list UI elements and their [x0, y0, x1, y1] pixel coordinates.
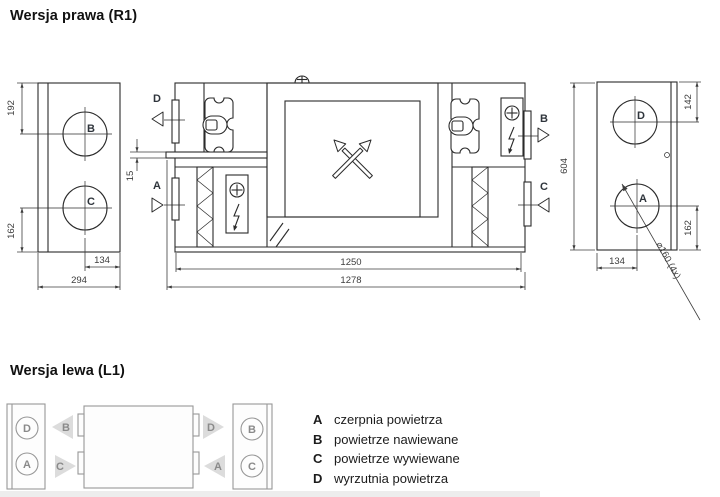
left-view-body [38, 83, 120, 252]
l1-unit [78, 406, 199, 488]
legend: A czerpnia powietrza B powietrze nawiewa… [313, 412, 460, 486]
legend-item: C powietrze wywiewane [313, 451, 460, 466]
legend-label: wyrzutnia powietrza [334, 471, 448, 486]
port-d-label: D [207, 422, 215, 434]
left-side-view: B C [20, 83, 120, 252]
legend-item: B powietrze nawiewane [313, 432, 460, 447]
port-a-label: A [23, 459, 31, 471]
port-d-label: D [153, 93, 161, 105]
dim-1278-label: 1278 [340, 275, 361, 286]
shelf-plate [166, 152, 267, 158]
port-c-label: C [540, 181, 548, 193]
heater-icon [226, 175, 248, 233]
legend-key: D [313, 471, 334, 486]
port-d-label: D [637, 110, 645, 122]
legend-item: D wyrzutnia powietrza [313, 471, 460, 486]
port-d-arrow [152, 112, 163, 126]
dim-1250-label: 1250 [340, 257, 361, 268]
port-c-arrow [538, 198, 549, 212]
dim-604-label: 604 [559, 158, 570, 174]
dim-294-label: 294 [71, 275, 87, 286]
dim-134-left-label: 134 [94, 255, 110, 266]
port-d-label: D [23, 423, 31, 435]
legend-key: A [313, 412, 334, 427]
lifting-eye-icon [295, 76, 309, 83]
port-a-stub [172, 178, 179, 220]
port-a-label: A [153, 180, 161, 192]
legend-key: C [313, 451, 334, 466]
port-c-label: C [56, 461, 64, 473]
port-c-stub [524, 182, 531, 226]
port-c-label: C [248, 461, 256, 473]
scan-shadow [0, 491, 540, 497]
legend-label: czerpnia powietrza [334, 412, 442, 427]
legend-key: B [313, 432, 334, 447]
legend-item: A czerpnia powietrza [313, 412, 460, 427]
port-a-arrow [152, 198, 163, 212]
front-view [164, 76, 541, 252]
dim-162-left-label: 162 [6, 223, 17, 239]
port-b-label: B [540, 113, 548, 125]
technical-drawing-page: Wersja prawa (R1) Wersja lewa (L1) [0, 0, 720, 497]
port-d-stub [172, 100, 179, 143]
port-a-label: A [639, 193, 647, 205]
l1-right-panel: B C [233, 404, 272, 489]
legend-label: powietrze nawiewane [334, 432, 458, 447]
dim-15-label: 15 [125, 171, 136, 182]
port-a-label: A [214, 461, 222, 473]
dim-142-label: 142 [683, 94, 694, 110]
l1-left-panel: D A [7, 404, 45, 489]
dim-192-label: 192 [6, 100, 17, 116]
dim-134-right-label: 134 [609, 256, 625, 267]
port-b-label: B [87, 123, 95, 135]
legend-label: powietrze wywiewane [334, 451, 460, 466]
port-b-label: B [62, 422, 70, 434]
port-b-label: B [248, 424, 256, 436]
port-b-stub [524, 111, 531, 159]
heater-icon [501, 98, 523, 156]
port-c-label: C [87, 196, 95, 208]
dim-162-right-label: 162 [683, 220, 694, 236]
port-b-arrow [538, 128, 549, 142]
